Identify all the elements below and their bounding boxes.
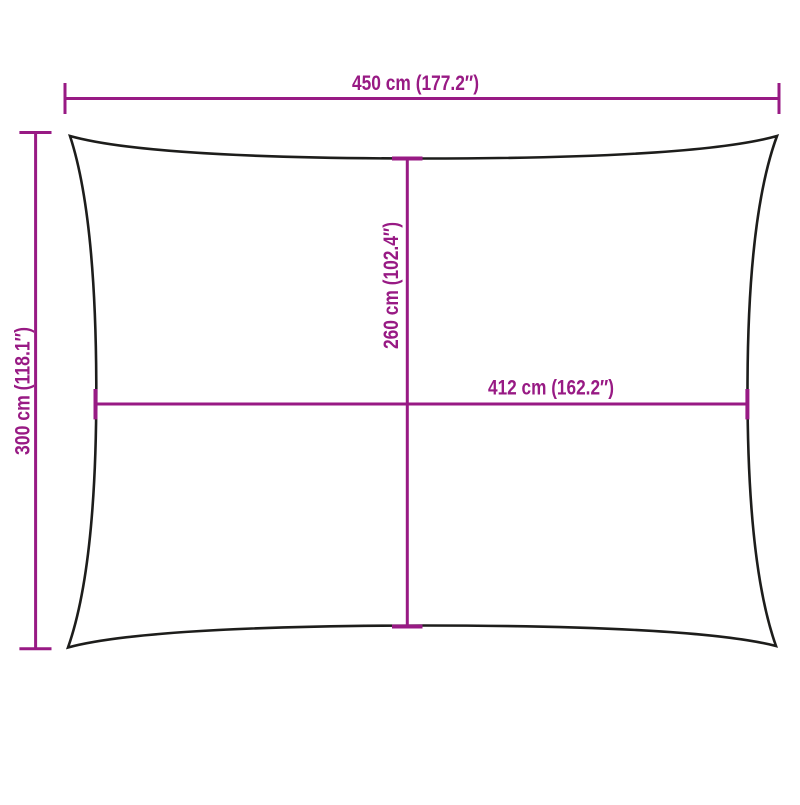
svg-text:412 cm (162.2″): 412 cm (162.2″)	[488, 377, 614, 400]
svg-text:300 cm (118.1″): 300 cm (118.1″)	[12, 327, 35, 455]
svg-text:450 cm (177.2″): 450 cm (177.2″)	[352, 72, 479, 95]
svg-text:260 cm (102.4″): 260 cm (102.4″)	[380, 222, 403, 349]
